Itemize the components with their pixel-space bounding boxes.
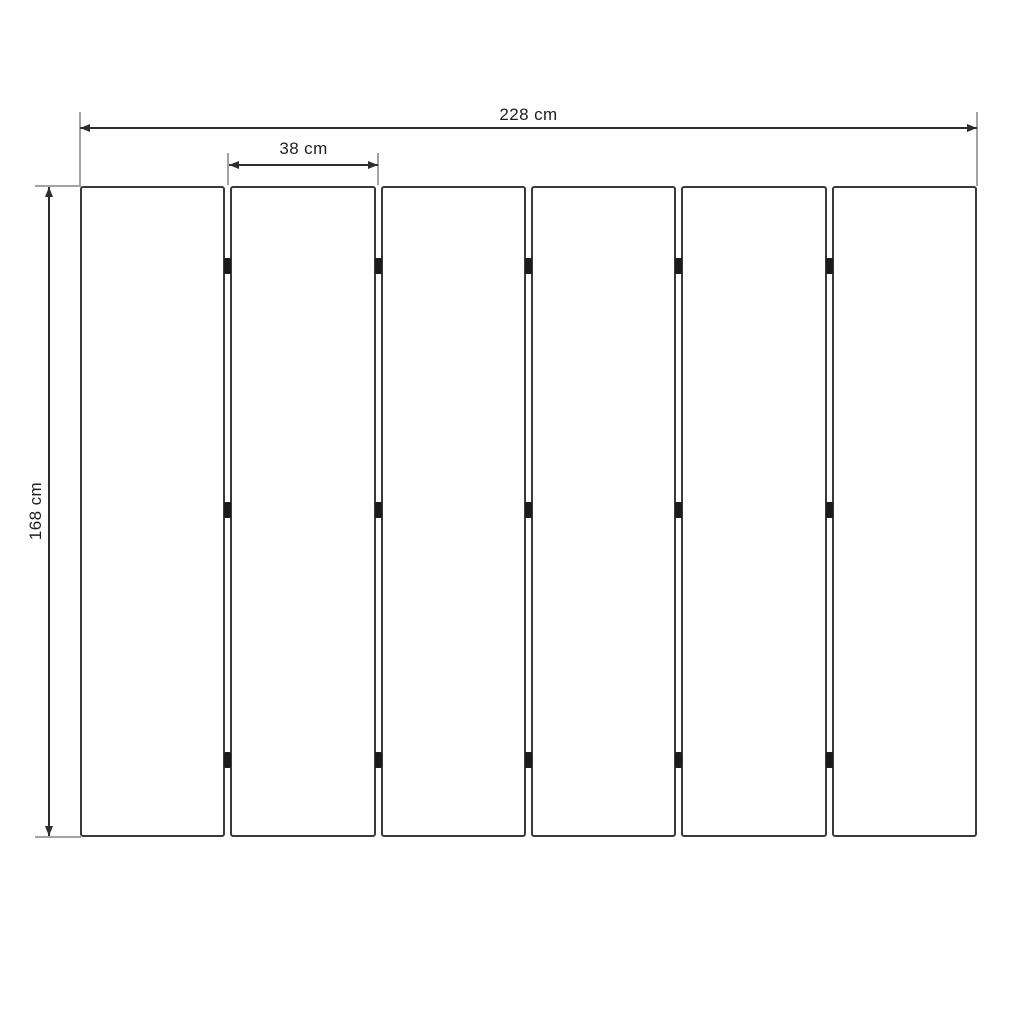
dimension-diagram: 228 cm 38 cm 168 cm [0,0,1024,1024]
arrowhead-right-icon [368,161,378,169]
dimension-line-height [48,187,50,836]
hinge-mark [675,502,682,518]
dimension-label-total-width: 228 cm [80,105,977,125]
arrowhead-left-icon [80,124,90,132]
dimension-line-panel-width [229,164,378,166]
hinge-mark [525,502,532,518]
extension-line-bottom [35,836,81,838]
hinge-mark [375,502,382,518]
panel [230,186,375,837]
hinge-mark [826,258,833,274]
panels-row [80,186,977,837]
arrowhead-down-icon [45,826,53,836]
panel [80,186,225,837]
hinge-mark [224,752,231,768]
hinge-mark [224,258,231,274]
panel [681,186,826,837]
dimension-line-total-width [80,127,977,129]
dimension-label-panel-width: 38 cm [229,139,378,159]
arrowhead-right-icon [967,124,977,132]
extension-line-top [35,185,81,187]
hinge-mark [826,502,833,518]
arrowhead-left-icon [229,161,239,169]
arrowhead-up-icon [45,187,53,197]
hinge-mark [224,502,231,518]
hinge-mark [826,752,833,768]
dimension-label-height: 168 cm [26,471,48,551]
hinge-mark [375,258,382,274]
hinge-mark [525,258,532,274]
hinge-mark [675,752,682,768]
hinge-mark [675,258,682,274]
panel [381,186,526,837]
hinge-mark [525,752,532,768]
hinge-mark [375,752,382,768]
panel [832,186,977,837]
panel [531,186,676,837]
